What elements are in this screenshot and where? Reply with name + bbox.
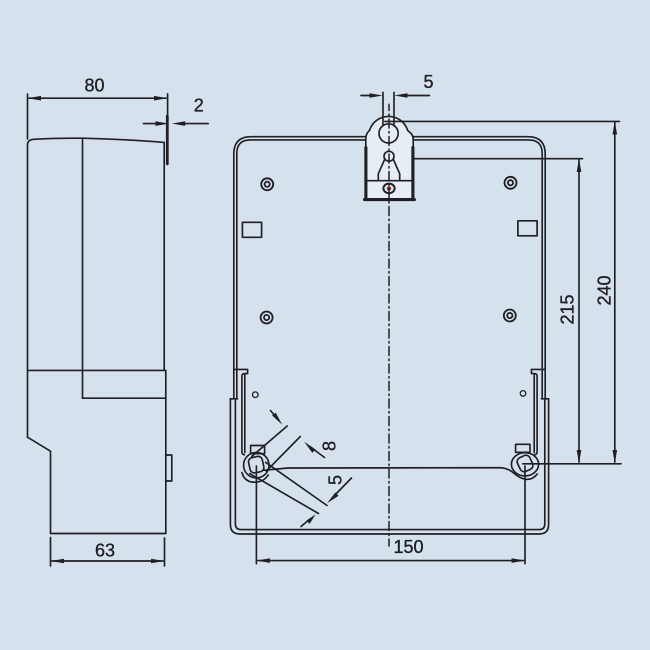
svg-text:80: 80 <box>84 76 104 96</box>
svg-text:2: 2 <box>194 96 204 116</box>
svg-text:63: 63 <box>95 541 115 561</box>
svg-text:5: 5 <box>326 475 346 485</box>
svg-text:240: 240 <box>595 275 615 305</box>
svg-text:215: 215 <box>558 294 578 324</box>
svg-text:150: 150 <box>393 537 423 557</box>
svg-text:8: 8 <box>320 441 340 451</box>
svg-text:5: 5 <box>423 72 433 92</box>
